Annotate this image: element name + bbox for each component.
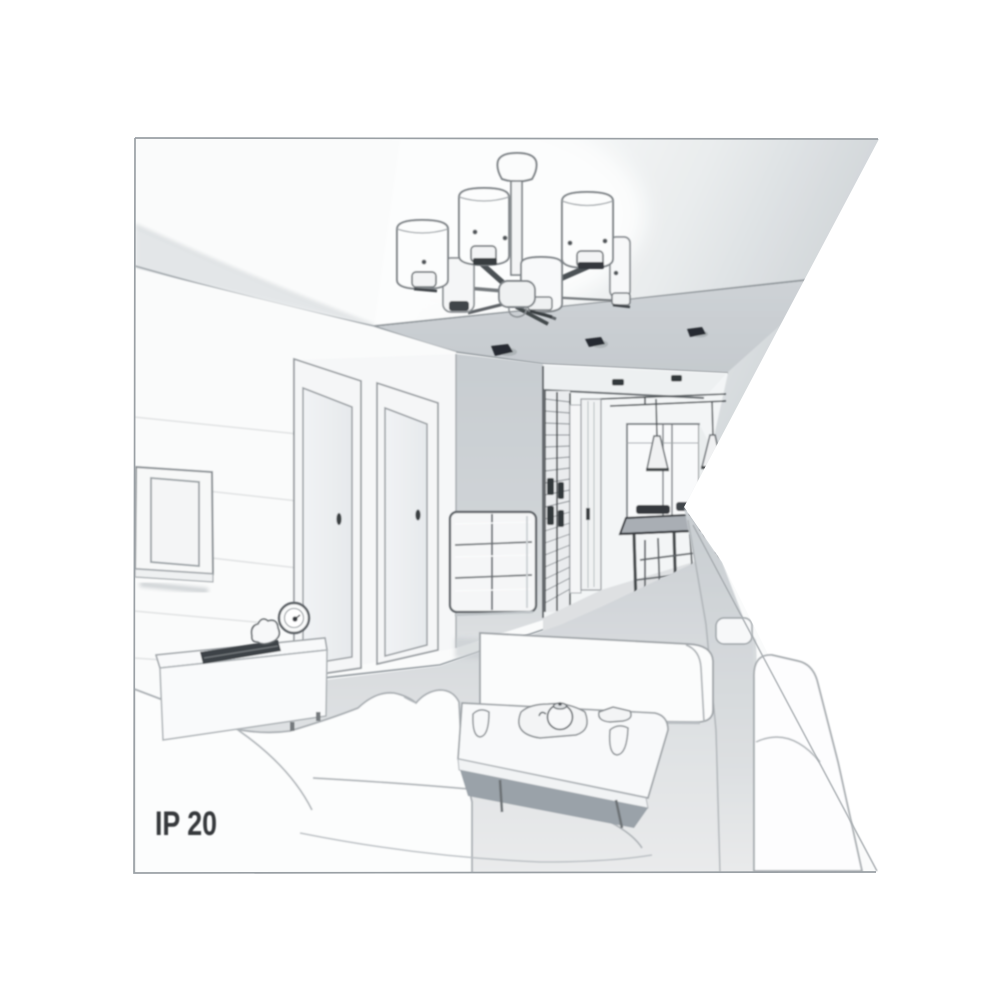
svg-text:IP 20: IP 20	[155, 805, 217, 843]
